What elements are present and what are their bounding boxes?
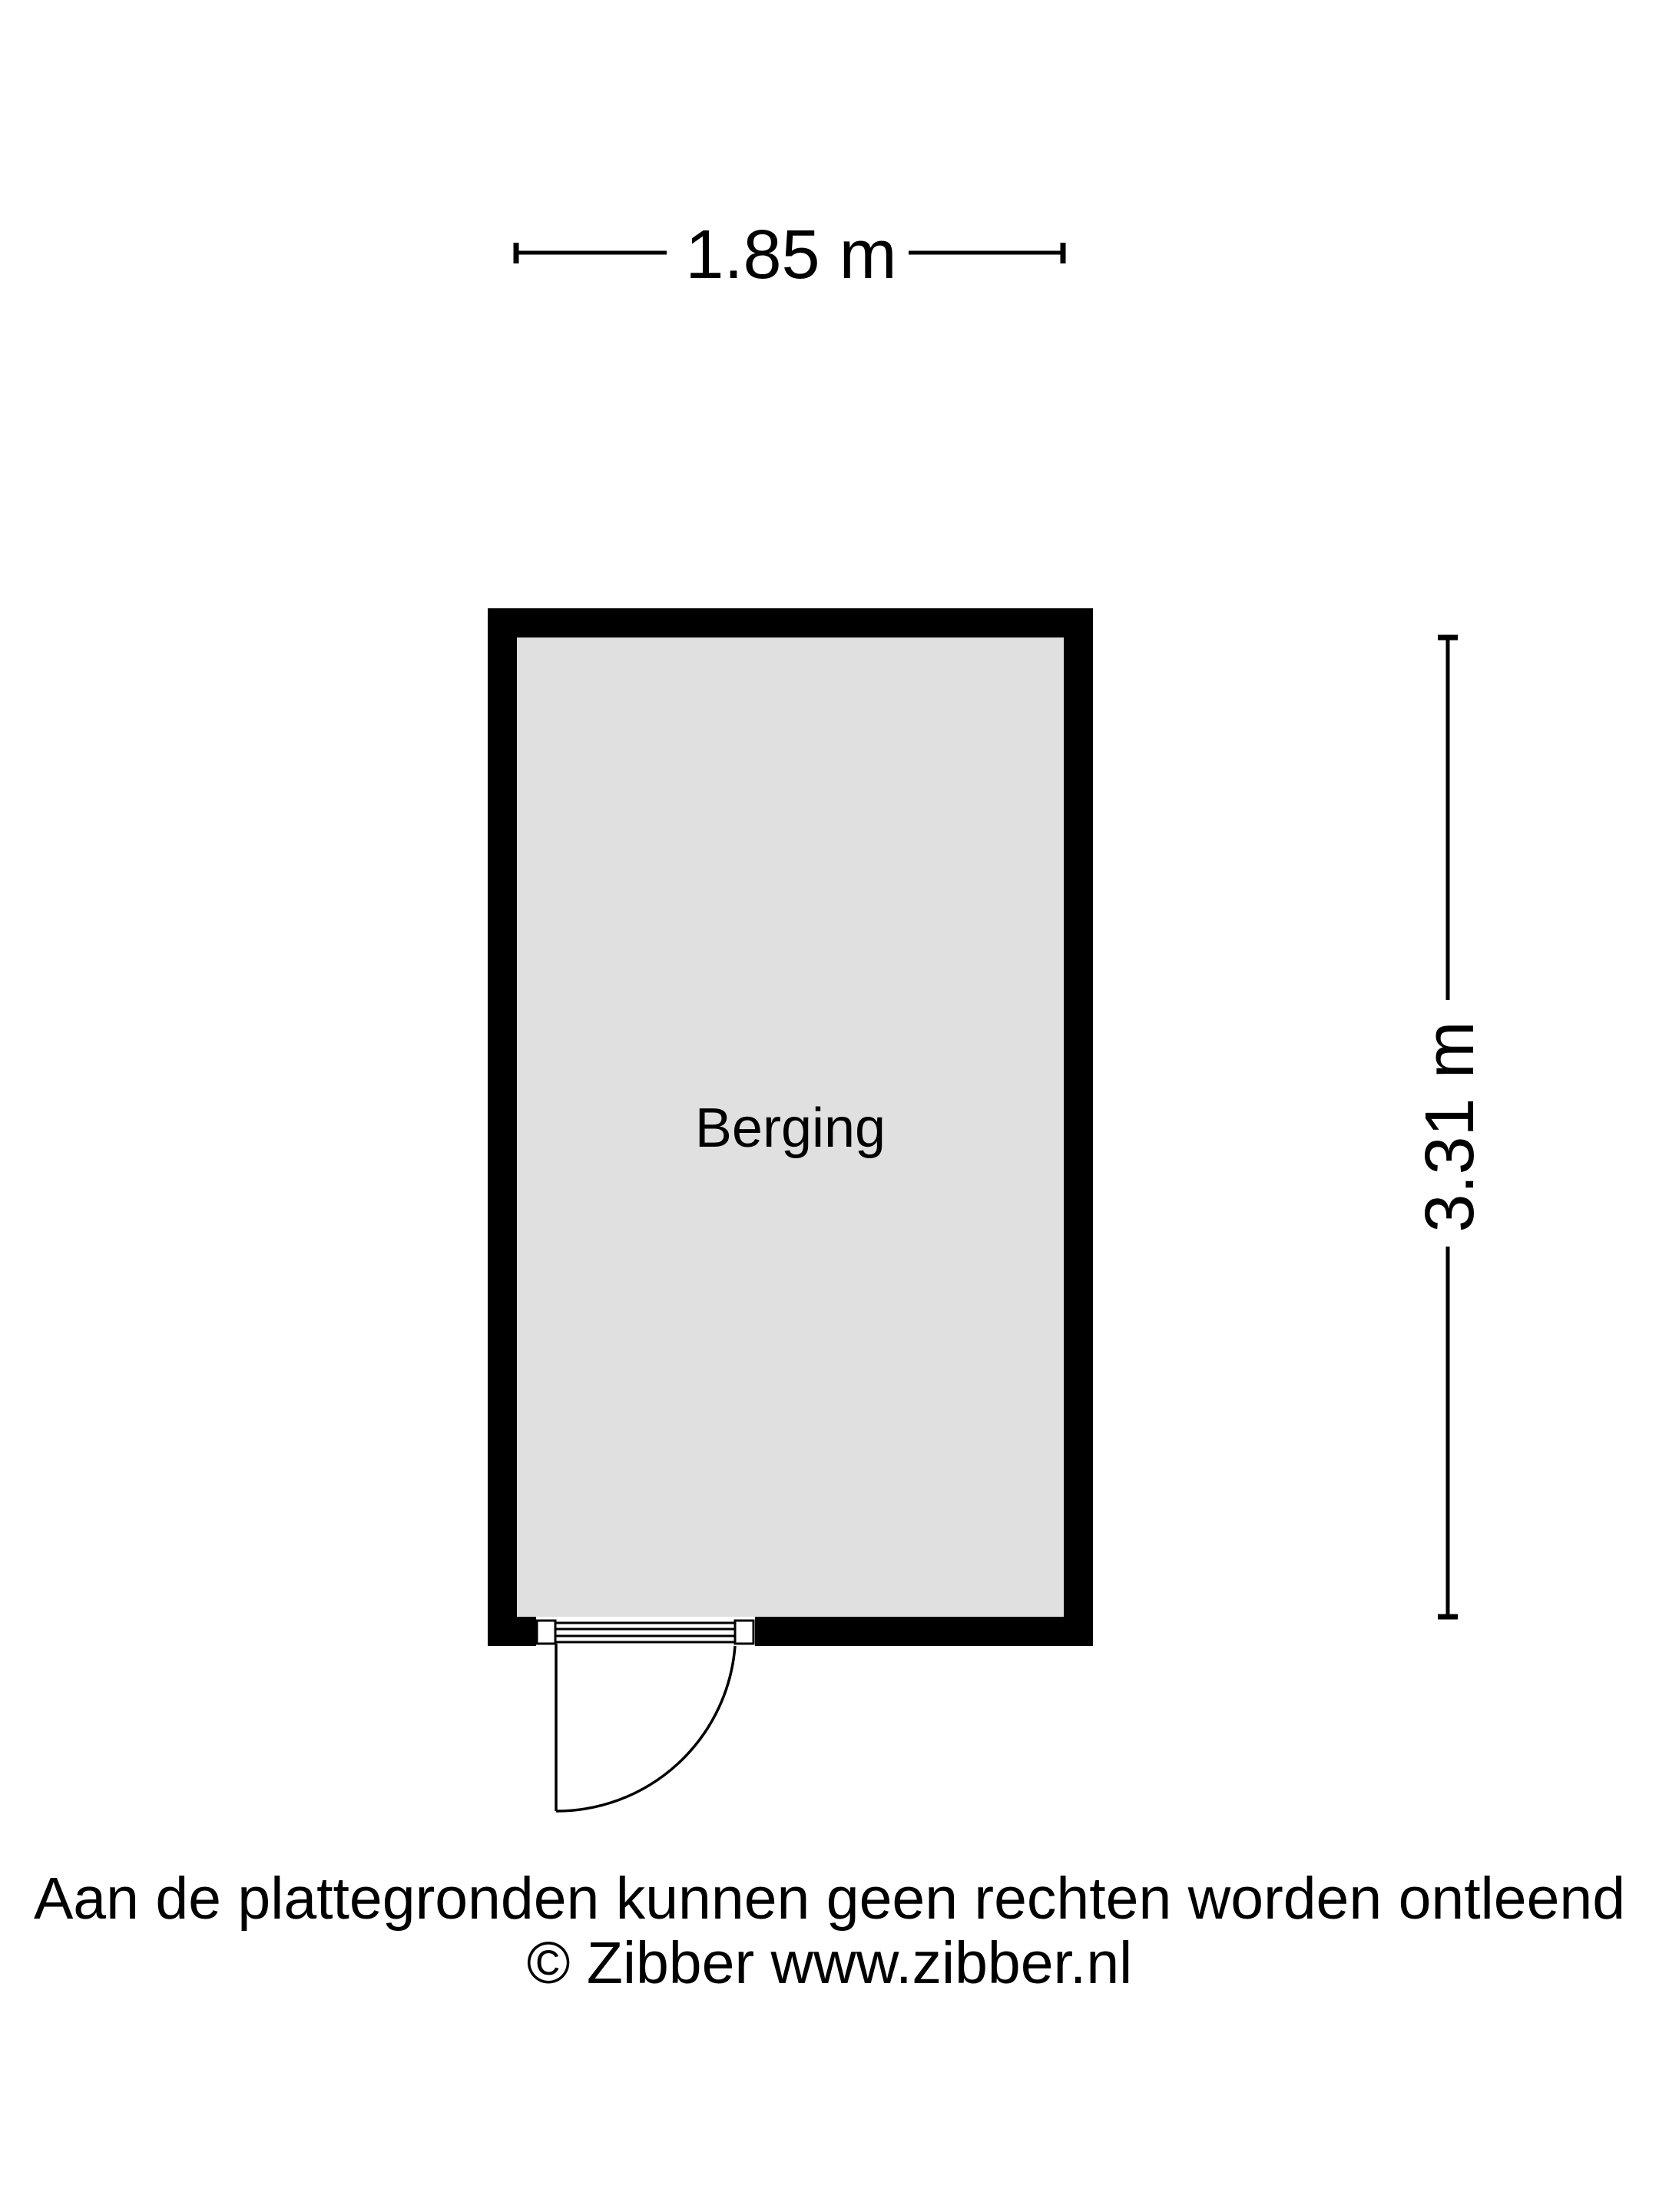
- room-label: Berging: [695, 1098, 886, 1159]
- height-dimension-label: 3.31 m: [1412, 1021, 1488, 1232]
- door-frame: [537, 1621, 753, 1644]
- footer-copyright: © Zibber www.zibber.nl: [527, 1930, 1133, 1996]
- width-dimension-label: 1.85 m: [685, 217, 896, 293]
- door-jamb-left: [537, 1621, 555, 1644]
- floorplan-page: 1.85 m Berging 3.31 m: [0, 0, 1659, 2212]
- door-swing: [556, 1644, 735, 1811]
- door-leaf-band: [555, 1623, 735, 1642]
- door-jamb-right: [735, 1621, 753, 1644]
- footer-disclaimer: Aan de plattegronden kunnen geen rechten…: [34, 1866, 1625, 1932]
- door-swing-arc: [556, 1646, 735, 1811]
- floorplan-drawing: 1.85 m Berging 3.31 m: [0, 0, 1659, 2212]
